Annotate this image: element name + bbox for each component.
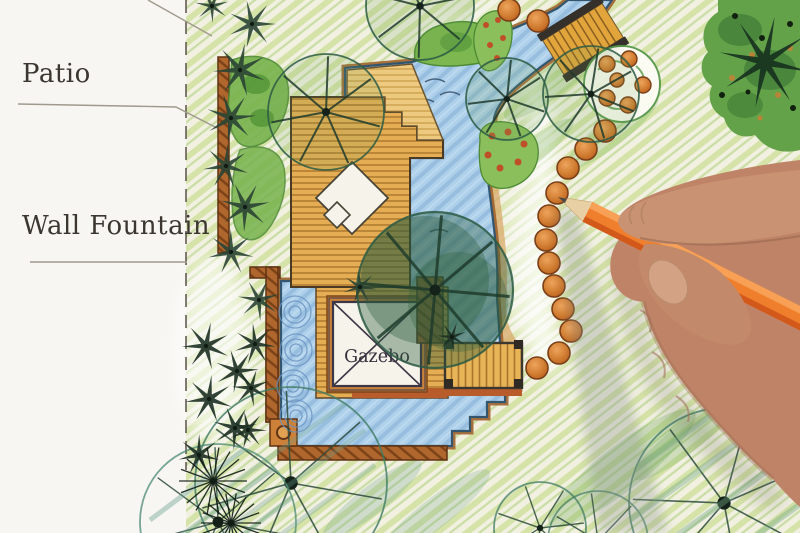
- stepping-stone: [535, 229, 557, 251]
- tree-icon: [268, 54, 384, 170]
- stepping-stone: [527, 10, 549, 32]
- stepping-stone: [498, 0, 520, 21]
- stepping-stone: [526, 357, 548, 379]
- stepping-stone: [548, 342, 570, 364]
- tree-icon: [357, 212, 513, 368]
- stepping-stone: [538, 252, 560, 274]
- wall-fountain-label: Wall Fountain: [22, 211, 210, 241]
- tree-icon: [543, 46, 639, 142]
- stepping-stone: [557, 157, 579, 179]
- stepping-stone: [543, 275, 565, 297]
- tree-icon: [466, 58, 548, 140]
- garden-plan-svg: Gazebo: [0, 0, 800, 533]
- patio-label: Patio: [22, 59, 91, 89]
- garden-plan-photo: Gazebo: [0, 0, 800, 533]
